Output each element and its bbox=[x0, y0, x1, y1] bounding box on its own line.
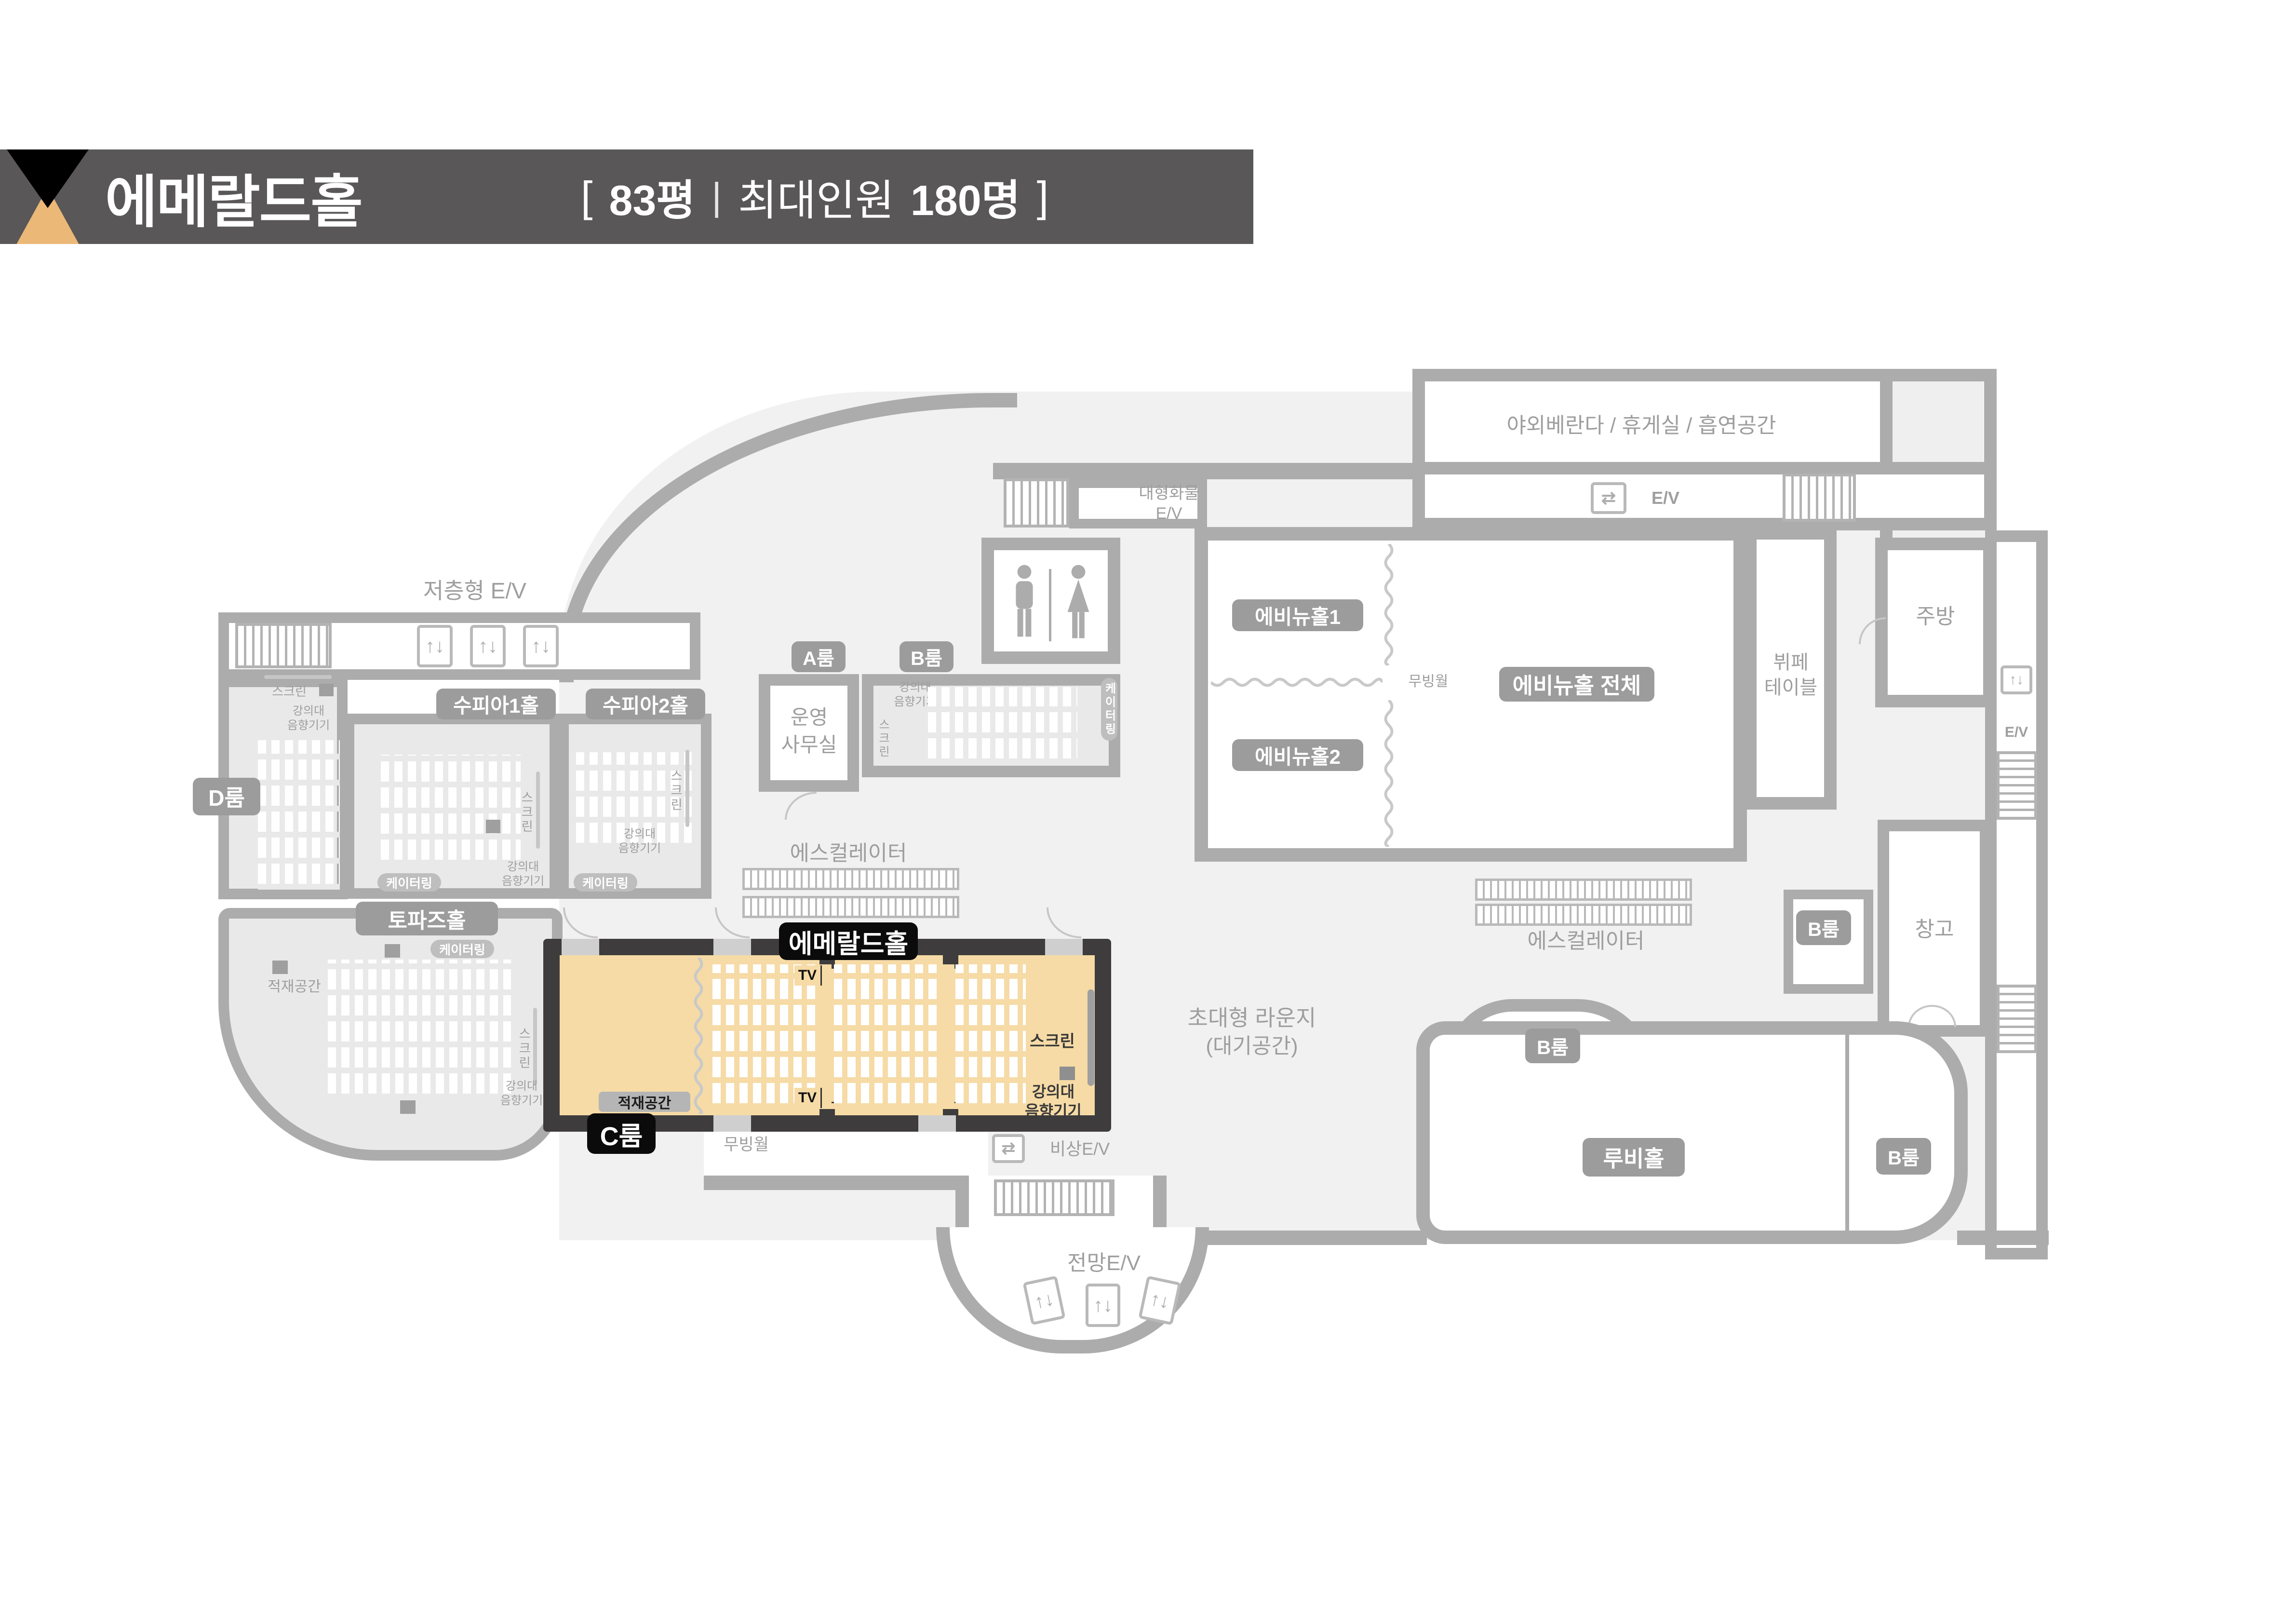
lectern-label: 강의대 음향기기 bbox=[270, 703, 347, 734]
office-line2: 사무실 bbox=[781, 731, 837, 759]
ruby-hall bbox=[1416, 1021, 1968, 1244]
stairs bbox=[994, 1179, 1114, 1216]
lectern-line1: 강의대 bbox=[506, 1079, 537, 1094]
badge-supia1: 수피아1홀 bbox=[436, 689, 556, 719]
lectern-square bbox=[319, 684, 334, 696]
lectern-line1: 강의대 bbox=[899, 680, 931, 695]
escalator bbox=[1475, 904, 1692, 926]
lectern-square bbox=[400, 1100, 416, 1114]
badge-avenue-all: 에비뉴홀 전체 bbox=[1499, 667, 1654, 702]
screen-line bbox=[685, 750, 689, 827]
moving-wall-label: 무빙월 bbox=[708, 1134, 785, 1155]
stack-badge: 적재공간 bbox=[599, 1092, 690, 1112]
floor-plan: 에메랄드홀 [ 83평 | 최대인원 180명 ] 야외베란다 / 휴게실 / … bbox=[0, 0, 2296, 1624]
door-gap bbox=[1045, 939, 1083, 955]
badge-b-room: B룸 bbox=[1796, 910, 1851, 945]
view-ev-label: 전망E/V bbox=[998, 1250, 1210, 1276]
elevator-glyph: ↑↓ bbox=[425, 636, 444, 657]
elevator-glyph: ↑↓ bbox=[1033, 1288, 1056, 1313]
moving-wall-wave bbox=[1383, 544, 1395, 665]
tv-label: TV bbox=[794, 965, 822, 986]
escalator bbox=[742, 868, 959, 890]
lectern-label: 강의대 음향기기 bbox=[604, 826, 676, 856]
escalator bbox=[1475, 879, 1692, 901]
escalator-label: 에스컬레이터 bbox=[757, 841, 940, 865]
elevator-icon: ↑↓ bbox=[523, 625, 559, 667]
catering-badge-vertical: 케이터링 bbox=[1101, 678, 1117, 741]
badge-a-room: A룸 bbox=[792, 641, 846, 672]
table-gap bbox=[818, 964, 832, 1109]
page-title: 에메랄드홀 bbox=[105, 149, 362, 244]
lectern-line1: 강의대 bbox=[507, 860, 539, 874]
moving-wall-wave bbox=[1383, 700, 1395, 847]
elevator-glyph: ↑↓ bbox=[1148, 1288, 1171, 1313]
screen-line bbox=[1088, 989, 1094, 1086]
right-ev-column bbox=[1985, 530, 2048, 1259]
table-block bbox=[712, 964, 1026, 1109]
elevator-glyph: ⇄ bbox=[1601, 488, 1616, 508]
wall-segment bbox=[704, 1176, 988, 1190]
screen-label: 스크린 bbox=[518, 771, 535, 853]
badge-supia2: 수피아2홀 bbox=[586, 689, 705, 719]
catering-badge: 케이터링 bbox=[377, 873, 441, 892]
stairs bbox=[235, 623, 332, 668]
lounge-line1: 초대형 라운지 bbox=[1188, 1004, 1316, 1033]
veranda-ev-strip bbox=[1412, 462, 1997, 530]
wall-segment bbox=[1957, 1231, 2049, 1245]
brand-logo bbox=[7, 149, 89, 244]
capacity-value: 180명 bbox=[911, 166, 1020, 228]
elevator-icon: ↑↓ bbox=[2001, 665, 2032, 694]
lounge-line2: (대기공간) bbox=[1206, 1032, 1298, 1060]
restroom-divider bbox=[1049, 569, 1051, 641]
door-gap bbox=[918, 1115, 956, 1132]
lectern-square bbox=[486, 820, 500, 833]
ev-label: E/V bbox=[1639, 486, 1692, 509]
screen-label: 스크린 bbox=[260, 683, 318, 700]
hall-area: 83평 bbox=[609, 166, 695, 228]
cargo-ev-label: 대형화물 E/V bbox=[1123, 482, 1215, 525]
table-block bbox=[258, 740, 340, 890]
stack-label: 적재공간 bbox=[255, 978, 334, 996]
office-line1: 운영 bbox=[791, 704, 828, 731]
screen-line bbox=[533, 1008, 537, 1085]
badge-topaz: 토파즈홀 bbox=[356, 902, 498, 935]
cargo-line1: 대형화물 bbox=[1139, 483, 1199, 504]
lectern-square bbox=[1060, 1067, 1075, 1080]
stack-square bbox=[272, 961, 288, 974]
stairs bbox=[1783, 474, 1856, 522]
badge-b-room: B룸 bbox=[1525, 1029, 1580, 1063]
door-gap bbox=[713, 1115, 751, 1132]
lectern-line2: 음향기기 bbox=[502, 874, 544, 889]
badge-c-room: C룸 bbox=[587, 1113, 656, 1154]
bracket-open: [ bbox=[581, 172, 592, 221]
veranda-label: 야외베란다 / 휴게실 / 흡연공간 bbox=[1422, 411, 1861, 440]
tv-label: TV bbox=[794, 1088, 822, 1108]
stairs bbox=[1004, 478, 1069, 528]
badge-emerald: 에메랄드홀 bbox=[779, 922, 918, 960]
badge-avenue1: 에비뉴홀1 bbox=[1232, 599, 1363, 631]
header-bar: 에메랄드홀 [ 83평 | 최대인원 180명 ] bbox=[0, 149, 1253, 244]
moving-wall-wave bbox=[1211, 676, 1383, 689]
bracket-close: ] bbox=[1037, 172, 1048, 221]
screen-label: 스크린 bbox=[668, 750, 684, 832]
stack-text: 적재공간 bbox=[618, 1091, 671, 1112]
kitchen-label: 주방 bbox=[1880, 604, 1991, 629]
lectern-label: 강의대 음향기기 bbox=[487, 859, 559, 889]
elevator-icon: ⇄ bbox=[1591, 482, 1626, 514]
badge-b-room: B룸 bbox=[900, 641, 953, 672]
stairs bbox=[1997, 985, 2037, 1053]
escalator bbox=[742, 896, 959, 918]
buffet-line1: 뷔페 bbox=[1773, 650, 1809, 675]
screen-label: 스크린 bbox=[875, 710, 890, 768]
screen-label: 스크린 bbox=[516, 1008, 532, 1090]
screen-line bbox=[264, 675, 332, 679]
screen-label: 스크린 bbox=[1021, 1031, 1084, 1052]
man-icon bbox=[1007, 564, 1041, 641]
lounge-label: 초대형 라운지 (대기공간) bbox=[1143, 1002, 1360, 1062]
badge-b-room: B룸 bbox=[1876, 1138, 1931, 1175]
badge-d-room: D룸 bbox=[193, 778, 260, 815]
badge-ruby: 루비홀 bbox=[1583, 1138, 1685, 1177]
moving-wall-wave bbox=[692, 958, 705, 1114]
storage-label: 창고 bbox=[1880, 916, 1989, 942]
hall-spec: [ 83평 | 최대인원 180명 ] bbox=[581, 149, 1048, 244]
lectern-line2: 음향기기 bbox=[618, 841, 661, 856]
elevator-glyph: ↑↓ bbox=[2009, 672, 2024, 688]
spec-divider: | bbox=[712, 175, 722, 219]
elevator-glyph: ↑↓ bbox=[1093, 1295, 1113, 1316]
elevator-icon: ↑↓ bbox=[1086, 1284, 1120, 1327]
elevator-glyph: ↑↓ bbox=[478, 636, 497, 657]
elevator-glyph: ⇄ bbox=[1002, 1139, 1016, 1158]
table-block bbox=[928, 687, 1077, 764]
elevator-icon: ↑↓ bbox=[470, 625, 506, 667]
wall-segment bbox=[993, 463, 1422, 479]
lectern-square bbox=[385, 944, 400, 958]
lectern-line2: 음향기기 bbox=[1025, 1101, 1082, 1121]
door-gap bbox=[562, 939, 599, 955]
moving-wall-label: 무빙월 bbox=[1397, 672, 1460, 691]
buffet-line2: 테이블 bbox=[1764, 675, 1817, 700]
capacity-label: 최대인원 bbox=[738, 166, 894, 228]
buffet-label: 뷔페 테이블 bbox=[1750, 649, 1832, 702]
lectern-line1: 강의대 bbox=[293, 704, 324, 718]
table-gap bbox=[941, 964, 954, 1109]
badge-avenue2: 에비뉴홀2 bbox=[1232, 739, 1363, 771]
lectern-line1: 강의대 bbox=[624, 827, 656, 841]
escalator-label: 에스컬레이터 bbox=[1490, 929, 1682, 953]
avenue-hall bbox=[1195, 527, 1747, 862]
ev-label: E/V bbox=[1995, 722, 2038, 743]
screen-line bbox=[536, 771, 540, 849]
catering-badge: 케이터링 bbox=[574, 873, 637, 892]
catering-badge: 케이터링 bbox=[430, 940, 494, 958]
table-block bbox=[381, 755, 521, 866]
cargo-line2: E/V bbox=[1156, 503, 1182, 524]
woman-icon bbox=[1061, 564, 1096, 641]
emergency-ev-label: 비상E/V bbox=[1032, 1137, 1128, 1160]
lectern-line1: 강의대 bbox=[1032, 1082, 1074, 1101]
stairs bbox=[1997, 751, 2037, 820]
wall-segment bbox=[1845, 1035, 1849, 1231]
low-ev-label: 저층형 E/V bbox=[354, 579, 595, 604]
elevator-icon: ⇄ bbox=[992, 1134, 1025, 1163]
elevator-icon: ↑↓ bbox=[417, 625, 453, 667]
door-gap bbox=[713, 939, 751, 955]
office-label: 운영 사무실 bbox=[765, 700, 854, 763]
lectern-line2: 음향기기 bbox=[287, 718, 330, 733]
elevator-glyph: ↑↓ bbox=[531, 636, 551, 657]
lectern-label: 강의대 음향기기 bbox=[1012, 1083, 1094, 1120]
lectern-line2: 음향기기 bbox=[500, 1094, 543, 1108]
